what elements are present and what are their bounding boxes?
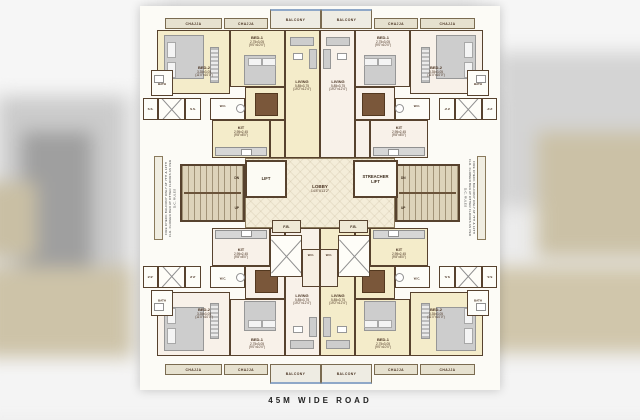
road-label: 45M WIDE ROAD [0,396,640,405]
pillow-icon [262,320,276,328]
balcony-label: BALCONY [337,18,357,22]
fb-label: F.B. [283,225,289,229]
toilet-label: W.C. [212,105,234,108]
lobby-dim: 14'8"X13'2" [290,189,350,193]
stair-up-label: UP [401,206,405,210]
chajja-strip: CHAJJA [374,364,418,375]
chajja-strip: CHAJJA [165,18,222,29]
bedroom-2-label: BED-2 3.35x3.05 (11'0"x10'0") [414,66,458,78]
wc-fixture-icon [236,273,245,282]
kitchen-sink-icon [241,230,252,237]
duct-shaft-icon [455,266,482,288]
kitchen-sink-icon [388,149,399,156]
flower-bed: F.B. [339,220,368,233]
coffee-table-icon [337,326,347,333]
balcony-strip: BALCONY [270,9,321,29]
stair-dn-label: DN [234,176,239,180]
room-dim-ft: (19'2"x12'4") [316,302,360,306]
service-slab: S.S. [185,266,201,288]
balcony-strip: BALCONY [270,364,321,384]
room-dim-ft: (11'0"x10'0") [182,316,226,320]
kitchen-label: KIT 2.95x2.45 (9'8"x8'0") [215,248,267,260]
bed-icon [244,301,276,331]
toilet-label: W.C. [212,278,234,281]
kitchen-label: KIT 2.95x2.45 (9'8"x8'0") [373,248,425,260]
dining-area [245,87,285,120]
kitchen-sink-icon [241,149,252,156]
pillow-icon [378,58,392,66]
bg-blob [537,132,640,257]
chajja-label: CHAJJA [238,368,254,372]
fire-check-balcony-left [154,156,163,240]
room-dim-ft: (11'0"x10'0") [182,74,226,78]
staircase-right-icon: DN UP [395,164,460,222]
ss-label: S.S. [487,275,493,279]
bg-blob [482,267,640,352]
sofa-icon [309,317,317,337]
room-dim-ft: (19'2"x12'4") [316,88,360,92]
coffee-table-icon [337,53,347,60]
screenshot-canvas: CHAJJA CHAJJA BALCONY BALCONY CHAJJA CHA… [0,0,640,420]
common-toilet: W.C. [302,249,320,287]
bedroom-2-label: BED-2 3.35x3.05 (11'0"x10'0") [182,308,226,320]
bedroom-2-label: BED-2 3.35x3.05 (11'0"x10'0") [182,66,226,78]
sofa-icon [326,37,350,46]
chajja-label: CHAJJA [388,22,404,26]
duct-shaft-icon [158,266,185,288]
bg-blob [0,0,162,92]
bath-fixture-icon [154,303,164,311]
toilet-label: W.C. [406,278,428,281]
service-slab: S.S. [482,98,497,120]
pillow-icon [167,328,176,344]
pillow-icon [364,58,378,66]
service-slab: S.S. [185,98,201,120]
bed-icon [364,55,396,85]
toilet-label: W.C. [406,105,428,108]
ss-label: S.S. [487,107,493,111]
stair-divider [184,192,240,193]
passage [355,120,370,158]
bathroom [151,290,173,316]
living-room-label: LIVING 5.85x3.75 (19'2"x12'4") [316,80,360,92]
room-dim-ft: (11'0"x10'0") [414,74,458,78]
service-slab: S.S. [439,98,455,120]
room-dim-ft: (9'8"x8'0") [215,134,267,138]
room-dim-ft: (11'0"x10'0") [414,316,458,320]
chajja-strip: CHAJJA [224,364,268,375]
service-slab: S.S. [482,266,497,288]
stair-divider [399,192,455,193]
ss-label: S.S. [190,107,196,111]
balcony-label: BALCONY [337,372,357,376]
room-dim-ft: (9'0"x10'0") [357,44,409,48]
bed-icon [244,55,276,85]
ss-label: S.S. [190,275,196,279]
ss-label: S.S. [148,275,154,279]
pillow-icon [464,42,473,58]
bedroom-1-label: BED-1 2.75x3.05 (9'0"x10'0") [357,36,409,48]
common-toilet: W.C. [320,249,338,287]
balcony-label: BALCONY [286,372,306,376]
lift-label: LIFT [262,176,271,181]
duct-shaft-icon [158,98,185,120]
chajja-strip: CHAJJA [374,18,418,29]
kitchen-platform-icon [373,230,425,239]
chajja-strip: CHAJJA [224,18,268,29]
side-note-left: FIRE CHECK BALCONY ONLY AT 7TH & 12TH FL… [164,158,178,238]
pillow-icon [248,320,262,328]
room-dim-ft: (9'8"x8'0") [215,256,267,260]
fb-label: F.B. [350,225,356,229]
stair-up-label: UP [235,206,239,210]
passage [270,120,285,158]
wc-label: W.C. [326,253,333,257]
bedroom-1-label: BED-1 2.75x3.05 (9'0"x10'0") [231,36,283,48]
ss-label: S.S. [148,107,154,111]
chajja-label: CHAJJA [440,368,456,372]
duct-shaft-icon [455,98,482,120]
wc-fixture-icon [395,104,404,113]
room-dim-ft: (9'8"x8'0") [373,134,425,138]
room-dim-ft: (9'0"x10'0") [231,44,283,48]
sofa-icon [290,37,314,46]
bedroom-1-label: BED-1 2.75x3.05 (9'0"x10'0") [357,338,409,350]
side-note-right: FIRE CHECK BALCONY ONLY AT 7TH & 12TH FL… [462,158,476,238]
bath-fixture-icon [476,303,486,311]
bathroom-label: BATH [468,300,488,303]
chajja-strip: CHAJJA [420,364,475,375]
chajja-label: CHAJJA [238,22,254,26]
apartment-top-right: BATH S.S. S.S. W.C. BED-2 3.35x3.05 (11'… [320,28,497,158]
floor-plan: CHAJJA CHAJJA BALCONY BALCONY CHAJJA CHA… [140,6,500,390]
bathroom-label: BATH [468,83,488,86]
pillow-icon [262,58,276,66]
pillow-icon [167,42,176,58]
chajja-label: CHAJJA [388,368,404,372]
bathroom [467,290,489,316]
dining-table-icon [255,93,278,116]
bed-icon [364,301,396,331]
balcony-label: BALCONY [286,18,306,22]
living-room-label: LIVING 5.85x3.75 (19'2"x12'4") [316,294,360,306]
wc-fixture-icon [236,104,245,113]
living-room [320,30,355,158]
lift: LIFT [245,160,287,198]
kitchen-sink-icon [388,230,399,237]
flower-bed: F.B. [272,220,301,233]
room-dim-ft: (9'8"x8'0") [373,256,425,260]
bathroom-label: BATH [152,300,172,303]
wc-fixture-icon [395,273,404,282]
sofa-icon [290,340,314,349]
toilet [210,98,245,120]
bathroom-label: BATH [152,83,172,86]
dining-area [355,87,395,120]
fire-check-balcony-right [477,156,486,240]
ss-label: S.S. [444,107,450,111]
chajja-strip: CHAJJA [165,364,222,375]
pillow-icon [378,320,392,328]
balcony-strip: BALCONY [321,364,372,384]
room-dim-ft: (9'0"x10'0") [231,346,283,350]
lift-duct-shaft-icon [338,235,370,277]
pillow-icon [364,320,378,328]
toilet [395,98,430,120]
lobby-label: LOBBY 14'8"X13'2" [290,184,350,194]
chajja-strip: CHAJJA [420,18,475,29]
sofa-icon [323,317,331,337]
chajja-label: CHAJJA [186,22,202,26]
service-slab: S.S. [143,98,158,120]
bedroom-1-label: BED-1 2.75x3.05 (9'0"x10'0") [231,338,283,350]
stretcher-lift-label: STREACHER LIFT [361,174,391,185]
coffee-table-icon [293,326,303,333]
pillow-icon [248,58,262,66]
bg-blob [0,267,132,357]
living-room [285,30,320,158]
wc-label: W.C. [308,253,315,257]
bg-blob [0,182,37,257]
sofa-icon [309,49,317,69]
kitchen-label: KIT 2.95x2.45 (9'8"x8'0") [373,126,425,138]
balcony-strip: BALCONY [321,9,372,29]
service-slab: S.S. [439,266,455,288]
service-slab: S.S. [143,266,158,288]
stretcher-lift: STREACHER LIFT [353,160,398,198]
room-dim-ft: (9'0"x10'0") [357,346,409,350]
coffee-table-icon [293,53,303,60]
chajja-label: CHAJJA [440,22,456,26]
kitchen-label: KIT 2.95x2.45 (9'8"x8'0") [215,126,267,138]
stair-dn-label: DN [401,176,406,180]
bedroom-2-label: BED-2 3.35x3.05 (11'0"x10'0") [414,308,458,320]
sofa-icon [326,340,350,349]
ss-label: S.S. [444,275,450,279]
chajja-label: CHAJJA [186,368,202,372]
lift-duct-shaft-icon [270,235,302,277]
kitchen-platform-icon [373,147,425,156]
staircase-left-icon: DN UP [180,164,245,222]
apartment-top-left: BATH S.S. S.S. W.C. BED-2 3.35x3.05 (11'… [143,28,320,158]
dining-table-icon [362,93,385,116]
sofa-icon [323,49,331,69]
pillow-icon [464,328,473,344]
